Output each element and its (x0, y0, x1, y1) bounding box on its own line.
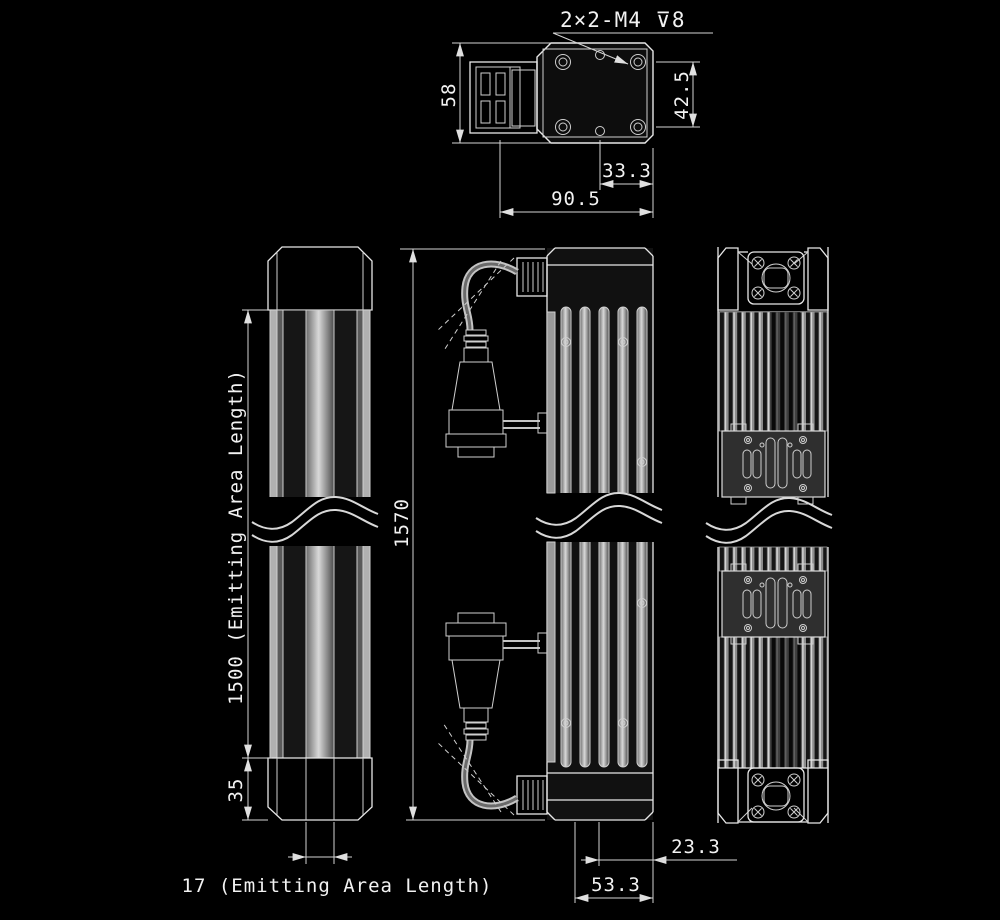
front-view (252, 247, 378, 820)
break-line-front (252, 497, 378, 529)
dimension-33-3: 33.3 (600, 140, 653, 218)
mounting-ear (718, 760, 738, 823)
top-flange (748, 252, 804, 304)
break-line-side (536, 506, 662, 538)
top-view (470, 43, 653, 143)
flange-screw-icon (788, 257, 800, 269)
flange-screw-icon (752, 806, 764, 818)
side-view (437, 248, 662, 820)
break-line-front (252, 510, 378, 542)
dim-17-label: 17 (Emitting Area Length) (182, 875, 493, 897)
housing-body-upper (268, 310, 372, 497)
flange-screw-icon (752, 774, 764, 786)
flange-screw-icon (788, 287, 800, 299)
mounting-ear (808, 760, 828, 823)
dim-58-label: 58 (438, 83, 460, 108)
drawing-canvas: 58 42.5 33.3 90.5 2×2-M4 ⊽8 (0, 0, 1000, 920)
dimension-42-5: 42.5 (656, 62, 700, 127)
cable-plug-bottom (437, 613, 547, 815)
break-line-side (536, 493, 662, 525)
back-view (706, 247, 832, 823)
bottom-end-cap (268, 758, 372, 820)
mounting-bracket-1 (722, 424, 825, 504)
dimension-1500: 1500 (Emitting Area Length) (225, 310, 272, 758)
engineering-drawing: 58 42.5 33.3 90.5 2×2-M4 ⊽8 (0, 0, 1000, 920)
dim-23-3-label: 23.3 (671, 836, 721, 858)
dim-1570-label: 1570 (391, 498, 413, 548)
break-line-back (706, 511, 832, 543)
cable-clamp (538, 633, 547, 653)
flange-screw-icon (788, 774, 800, 786)
flange-screw-icon (752, 257, 764, 269)
dim-90-5-label: 90.5 (551, 188, 601, 210)
power-connector-top-view (470, 62, 537, 133)
thread-callout-label: 2×2-M4 ⊽8 (560, 8, 686, 32)
flange-screw-icon (752, 287, 764, 299)
top-end-cap (268, 247, 372, 310)
dimension-17: 17 (Emitting Area Length) (182, 822, 493, 897)
mounting-ear (718, 248, 738, 310)
cable-plug-top (437, 258, 547, 457)
bottom-flange (748, 768, 804, 822)
dim-35-label: 35 (225, 778, 247, 803)
mounting-bracket-2 (722, 564, 825, 644)
dim-1500-label: 1500 (Emitting Area Length) (225, 369, 247, 705)
mounting-ear (808, 248, 828, 310)
dimension-35: 35 (225, 758, 268, 820)
dimension-53-3: 53.3 (575, 822, 653, 903)
dim-33-3-label: 33.3 (602, 160, 652, 182)
dim-53-3-label: 53.3 (591, 874, 641, 896)
housing-body-lower (270, 546, 370, 758)
cable-clamp (538, 413, 547, 433)
dim-42-5-label: 42.5 (671, 70, 693, 120)
